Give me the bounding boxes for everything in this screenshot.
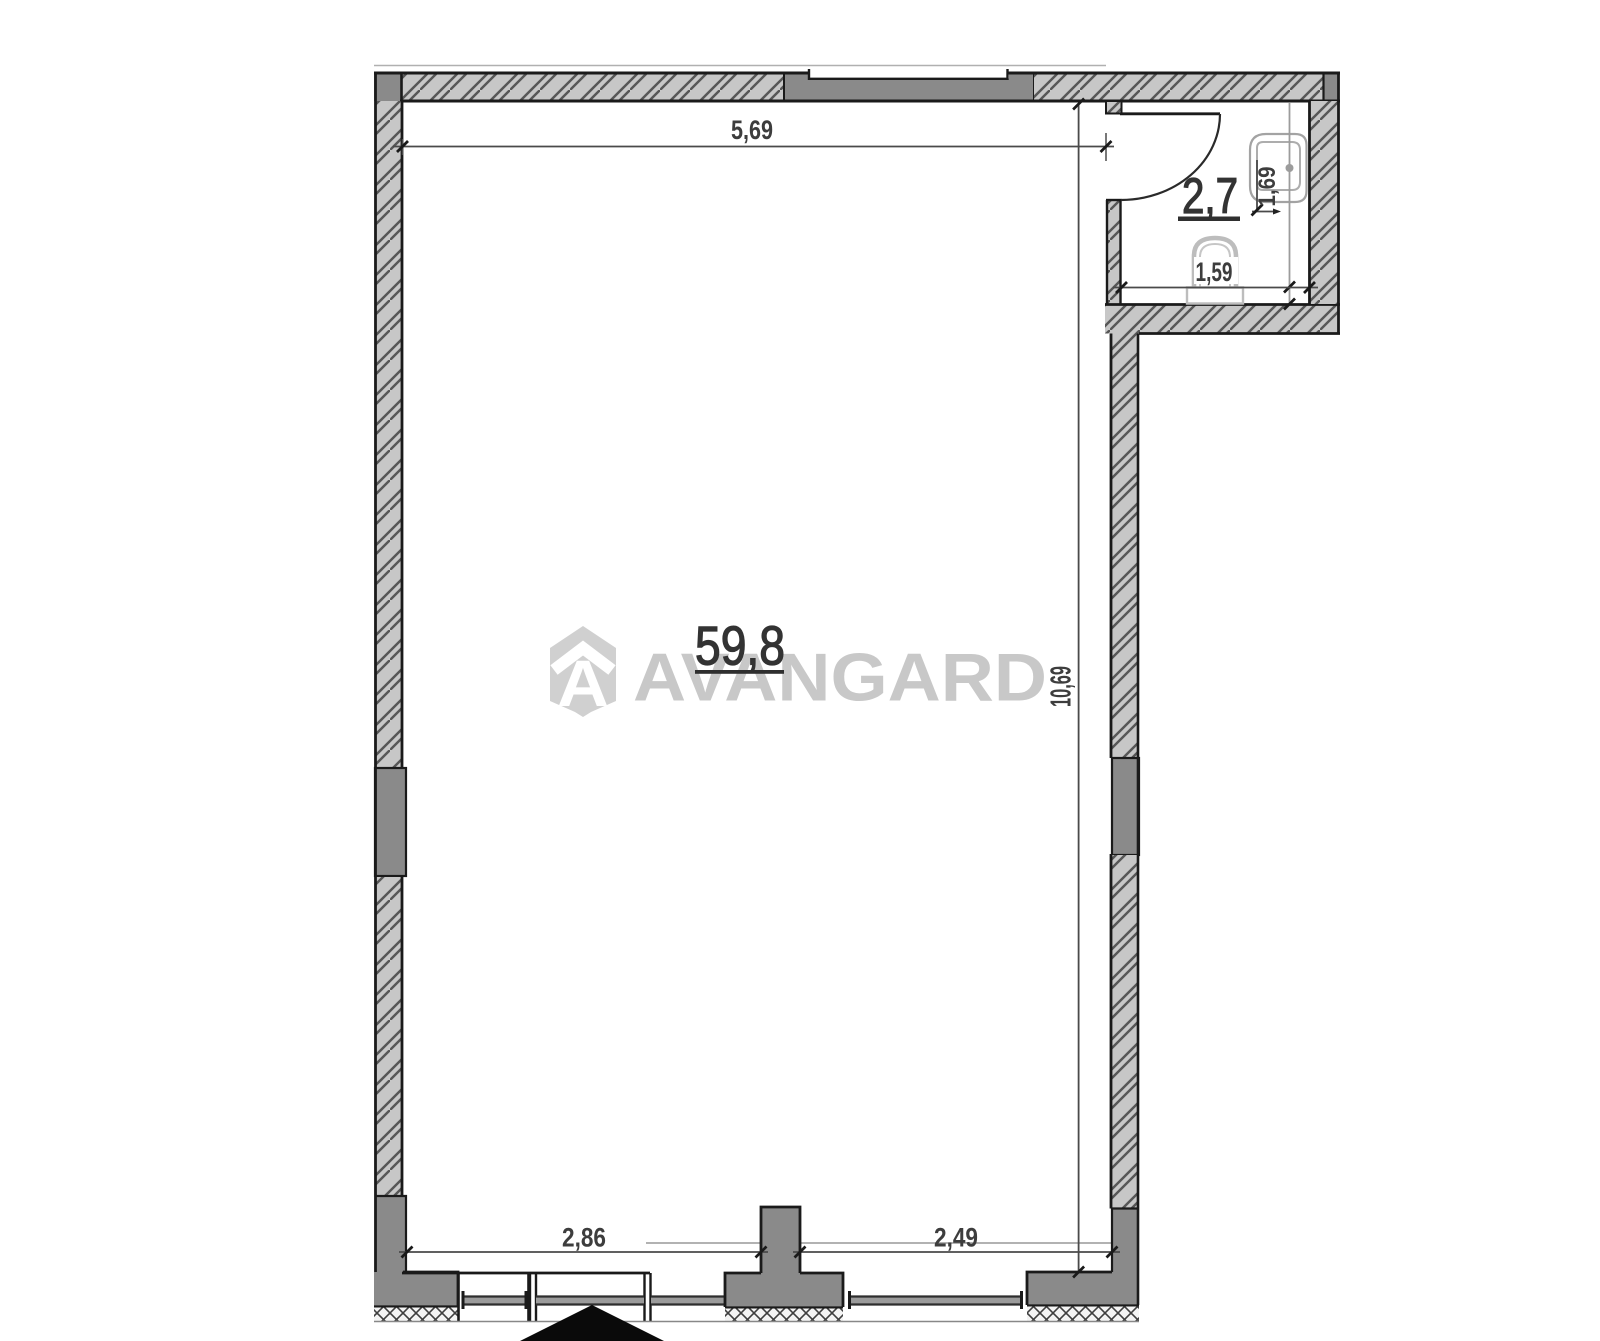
svg-text:5,69: 5,69 (731, 115, 773, 145)
svg-text:2,7: 2,7 (1182, 168, 1238, 224)
svg-text:1,69: 1,69 (1254, 167, 1281, 207)
svg-text:A: A (557, 646, 609, 720)
svg-text:10,69: 10,69 (1046, 666, 1078, 707)
svg-text:59,8: 59,8 (695, 615, 785, 677)
svg-text:2,49: 2,49 (934, 1223, 978, 1253)
svg-text:1,59: 1,59 (1196, 257, 1233, 287)
svg-text:2,86: 2,86 (562, 1223, 606, 1253)
